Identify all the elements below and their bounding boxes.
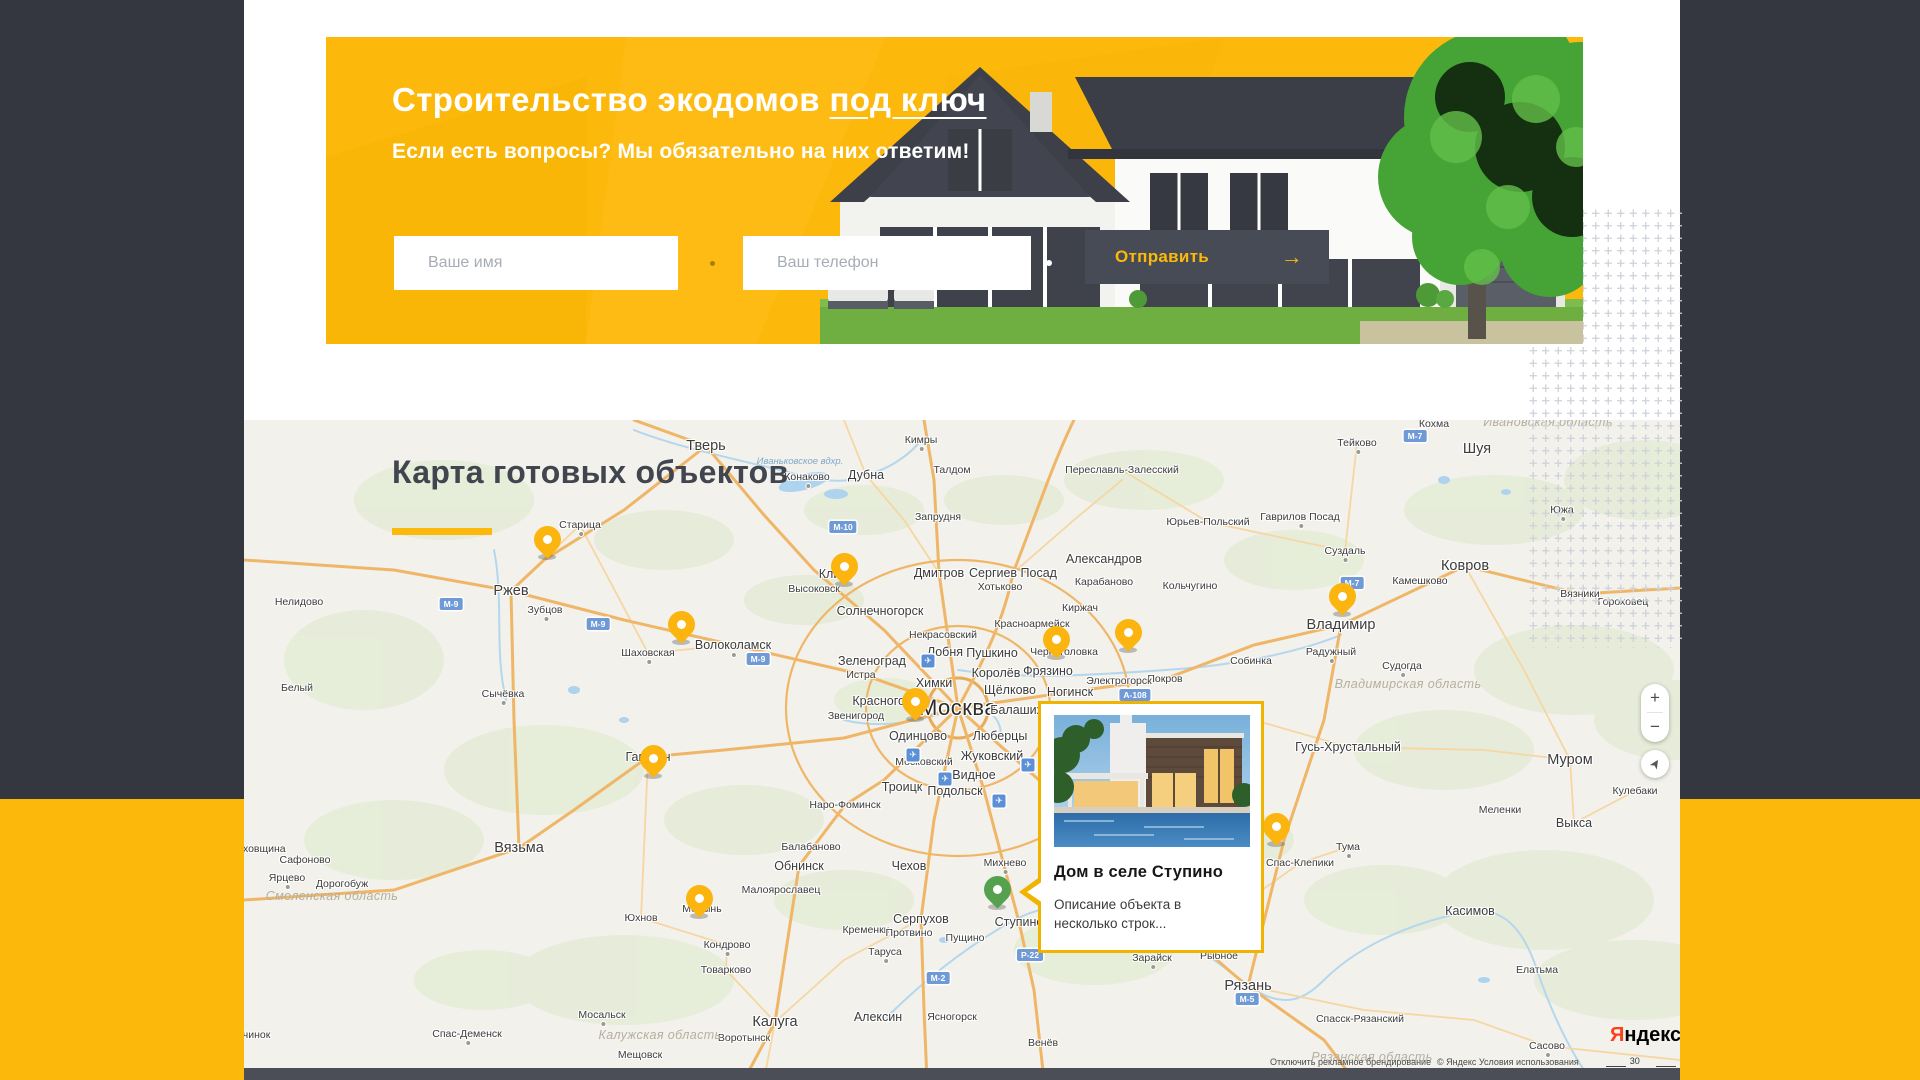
map-city-label: Товарково — [701, 964, 751, 976]
map-city-label: Троицк — [882, 780, 922, 794]
send-button[interactable]: Отправить → — [1085, 230, 1329, 284]
map-city-label: Москва — [919, 695, 997, 721]
map-section-title: Карта готовых объектов — [392, 454, 788, 491]
map-city-label: Ковров — [1441, 558, 1489, 574]
road-badge: М-9 — [440, 598, 463, 610]
map-city-label: Обнинск — [774, 859, 823, 873]
map-city-label: Шуя — [1463, 441, 1491, 457]
map-city-label: Сычёвка — [482, 688, 525, 700]
road-badge: М-7 — [1404, 430, 1427, 442]
map-city-label: Калуга — [752, 1014, 797, 1030]
map-city-label: Вязьма — [494, 840, 544, 856]
map-city-label: Чехов — [892, 859, 927, 873]
map-city-label: Александров — [1066, 552, 1142, 566]
airport-icon: ✈ — [922, 655, 935, 668]
map-city-label: Сергиев Посад — [969, 566, 1057, 580]
map-city-label: Владимир — [1307, 617, 1376, 633]
right-margin-bottom — [1680, 799, 1920, 1080]
road-badge: М-10 — [829, 521, 856, 533]
map-city-label: Сафоново — [280, 854, 331, 866]
popup-title: Дом в селе Ступино — [1054, 863, 1248, 882]
map-city-label: Подольск — [927, 784, 982, 798]
road-badge: М-5 — [1236, 993, 1259, 1005]
phone-input[interactable] — [743, 236, 1031, 290]
town-dot — [883, 958, 889, 964]
road-badge: М-9 — [747, 653, 770, 665]
map-city-label: Спасск-Рязанский — [1316, 1013, 1404, 1025]
map-city-label: Мещовск — [618, 1049, 662, 1061]
map-bottom-strip — [244, 1068, 1680, 1080]
disable-branding-link[interactable]: Отключить рекламное брендирование — [1270, 1057, 1431, 1067]
map-city-label: Серпухов — [893, 912, 949, 926]
map-city-label: Судогда — [1382, 660, 1422, 672]
map-city-label: Тума — [1336, 841, 1360, 853]
map-city-label: Касимов — [1445, 904, 1495, 918]
town-dot — [1355, 449, 1361, 455]
map-zoom-control[interactable]: +− — [1641, 684, 1669, 742]
banner-title-underlined: под ключ — [830, 81, 987, 118]
map-region-label: Смоленская область — [266, 889, 399, 903]
map-city-label: Хотьково — [978, 581, 1023, 593]
map-city-label: Меленки — [1479, 804, 1522, 816]
map-city-label: Королёв — [972, 666, 1021, 680]
map-city-label: Зубцов — [527, 604, 562, 616]
map-city-label: Муром — [1547, 752, 1592, 768]
object-photo — [1054, 715, 1250, 847]
map-city-label: Гаврилов Посад — [1260, 511, 1339, 523]
town-dot — [1298, 523, 1304, 529]
object-popup-card[interactable]: Дом в селе СтупиноОписание объекта в нес… — [1038, 701, 1264, 953]
town-dot — [1150, 964, 1156, 970]
map-city-label: Наро-Фоминск — [809, 799, 880, 811]
map-city-label: Суздаль — [1325, 545, 1366, 557]
road-badge: А-108 — [1119, 689, 1150, 701]
map-city-label: Собинка — [1230, 655, 1272, 667]
map-city-label: Люберцы — [973, 729, 1028, 743]
map-city-label: Рязань — [1224, 978, 1271, 994]
map-city-label: Жуковский — [961, 749, 1023, 763]
map-city-label: Фрязино — [1023, 664, 1073, 678]
map-city-label: Ржев — [493, 583, 528, 599]
form-separator-dot — [710, 261, 715, 266]
banner-subtitle: Если есть вопросы? Мы обязательно на них… — [392, 140, 970, 164]
road-badge: М-2 — [927, 972, 950, 984]
map-region-label: Ивановская область — [1483, 420, 1613, 429]
name-input[interactable] — [394, 236, 678, 290]
zoom-in-button[interactable]: + — [1641, 684, 1669, 712]
town-dot — [578, 531, 584, 537]
map-city-label: Кондрово — [704, 939, 751, 951]
map-city-label: Гороховец — [1598, 596, 1649, 608]
map-city-label: Духовщина — [244, 843, 286, 855]
map-city-label: Покров — [1147, 673, 1182, 685]
map-city-label: Алексин — [854, 1010, 902, 1024]
map-city-label: Звенигород — [828, 710, 884, 722]
map-city-label: Вязники — [1560, 588, 1600, 600]
map-city-label: Шаховская — [621, 647, 675, 659]
map-city-label: Истра — [846, 669, 875, 681]
map-city-label: Кохма — [1419, 420, 1449, 430]
map-city-label: Кимры — [905, 434, 938, 446]
map-city-label: Киржач — [1062, 602, 1098, 614]
left-margin-bottom — [0, 799, 244, 1080]
yandex-ya-letter: Я — [1610, 1024, 1624, 1046]
map-city-label: Протвино — [886, 927, 933, 939]
yandex-rest: ндекс — [1624, 1024, 1680, 1046]
map-city-label: Ясногорск — [927, 1011, 977, 1023]
town-dot — [1346, 853, 1352, 859]
terms-of-use-link[interactable]: © Яндекс Условия использования — [1437, 1057, 1579, 1067]
map-city-label: Мосальск — [578, 1009, 625, 1021]
zoom-out-button[interactable]: − — [1641, 713, 1669, 741]
airport-icon: ✈ — [939, 773, 952, 786]
map-city-label: Переславль-Залесский — [1065, 464, 1179, 476]
popup-pointer-inner — [1027, 881, 1043, 903]
town-dot — [600, 1021, 606, 1027]
map-city-label: Юхнов — [624, 912, 657, 924]
map-city-label: Волоколамск — [695, 638, 771, 652]
town-dot — [646, 659, 652, 665]
map-city-label: Зеленоград — [838, 654, 906, 668]
map-city-label: Московский — [895, 756, 953, 768]
map-city-label: Михнево — [984, 857, 1027, 869]
map-city-label: Кулебаки — [1612, 785, 1657, 797]
map-city-label: Химки — [916, 676, 952, 690]
map-canvas[interactable]: ТверьКонаковоДубнаКимрыТалдомЗапрудняПер… — [244, 420, 1680, 1080]
map-city-label: Камешково — [1392, 575, 1447, 587]
map-city-label: Белый — [281, 682, 313, 694]
map-city-label: Ногинск — [1047, 685, 1093, 699]
map-region-label: Калужская область — [598, 1028, 721, 1042]
town-dot — [465, 1040, 471, 1046]
map-city-label: Тейково — [1337, 437, 1376, 449]
map-city-label: Некрасовский — [909, 629, 977, 641]
map-city-label: Талдом — [933, 464, 970, 476]
map-city-label: Елатьма — [1516, 964, 1558, 976]
geolocation-arrow-icon: ➤ — [1640, 752, 1670, 776]
map-city-label: Ярцево — [269, 872, 305, 884]
arrow-right-icon: → — [1281, 244, 1303, 270]
banner-title: Строительство экодомов под ключ — [392, 81, 986, 119]
airport-icon: ✈ — [1022, 759, 1035, 772]
map-city-label: Пущино — [946, 932, 985, 944]
popup-description: Описание объекта в несколько строк... — [1054, 895, 1224, 933]
form-separator-dot — [1046, 260, 1052, 266]
map-city-label: Сасово — [1529, 1040, 1565, 1052]
map-city-label: Кольчугино — [1163, 580, 1218, 592]
map-city-label: Дмитров — [914, 566, 964, 580]
map-city-label: Дубна — [848, 468, 884, 482]
road-badge: М-9 — [587, 618, 610, 630]
map-city-label: Старица — [559, 519, 601, 531]
map-city-label: Тверь — [686, 438, 725, 454]
map-city-label: Карабаново — [1075, 576, 1133, 588]
airport-icon: ✈ — [907, 749, 920, 762]
map-city-label: Спас-Клепики — [1266, 857, 1334, 869]
map-city-label: Нелидово — [275, 596, 323, 608]
map-city-label: Венёв — [1028, 1037, 1058, 1049]
map-city-label: Малоярославец — [742, 884, 821, 896]
map-city-label: Кременки — [842, 924, 889, 936]
map-city-label: Пушкино — [966, 646, 1018, 660]
airport-icon: ✈ — [993, 795, 1006, 808]
map-city-label: Гусь-Хрустальный — [1295, 740, 1401, 754]
map-city-label: Южа — [1550, 504, 1573, 516]
map-city-label: Балабаново — [781, 841, 840, 853]
geolocation-button[interactable]: ➤ — [1641, 750, 1669, 778]
town-dot — [543, 616, 549, 622]
title-underline — [392, 528, 492, 535]
hero-banner: Строительство экодомов под ключ Если ест… — [326, 37, 1583, 344]
town-dot — [1560, 516, 1566, 522]
map-city-label: Видное — [952, 768, 995, 782]
yandex-logo[interactable]: Яндекс — [1610, 1024, 1680, 1047]
map-city-label: Солнечногорск — [837, 604, 924, 618]
map-city-label: Конаково — [784, 471, 829, 483]
map-city-label: Таруса — [868, 946, 902, 958]
map-region-label: Владимирская область — [1335, 677, 1482, 691]
map-city-label: Запрудня — [915, 511, 961, 523]
map-city-label: Радужный — [1306, 646, 1356, 658]
map-city-label: Ступино — [995, 915, 1044, 929]
map-city-label: Зарайск — [1132, 952, 1172, 964]
map-city-label: Электрогорск — [1086, 675, 1152, 687]
map-city-label: Спас-Деменск — [432, 1028, 502, 1040]
map-city-label: Выкса — [1556, 816, 1592, 830]
town-dot — [805, 483, 811, 489]
map-city-label: Починок — [244, 1029, 270, 1041]
map-city-label: Юрьев-Польский — [1166, 516, 1249, 528]
map-city-label: Одинцово — [889, 729, 947, 743]
map-city-label: Воротынск — [718, 1032, 770, 1044]
map-city-label: Высоковск — [788, 583, 840, 595]
